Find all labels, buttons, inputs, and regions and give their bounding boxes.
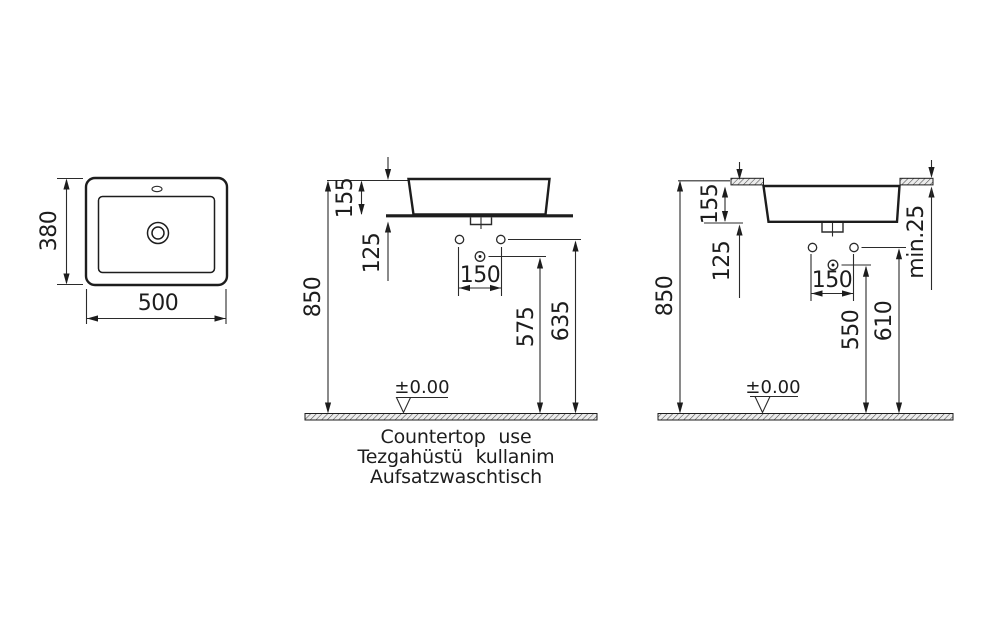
floor-level-label-countertop: ±0.00 bbox=[394, 379, 449, 397]
dim-label-125-recessed: 125 bbox=[712, 241, 734, 282]
floor-level-marker bbox=[750, 397, 798, 413]
dim-label-150-recessed: 150 bbox=[812, 270, 853, 292]
caption-tr: Tezgahüstü kullanim bbox=[331, 447, 581, 467]
floor-line bbox=[305, 414, 597, 421]
dim-label-850-recessed: 850 bbox=[655, 276, 677, 317]
countertop-right bbox=[900, 178, 933, 185]
basin-body-side bbox=[764, 186, 900, 222]
countertop-left bbox=[731, 178, 764, 185]
wall-holes bbox=[808, 243, 858, 270]
basin-body-side bbox=[409, 179, 550, 215]
dim-label-850-countertop: 850 bbox=[303, 277, 325, 318]
dim-label-575: 575 bbox=[516, 307, 538, 348]
dim-label-610: 610 bbox=[874, 301, 896, 342]
dim-125-lines bbox=[385, 157, 391, 281]
floor-line bbox=[658, 414, 953, 421]
floor-level-marker bbox=[396, 398, 448, 413]
floor-level-label-recessed: ±0.00 bbox=[745, 379, 800, 397]
dim-label-155-recessed: 155 bbox=[700, 184, 722, 225]
dim-label-155-countertop: 155 bbox=[335, 178, 357, 219]
dim-label-150-countertop: 150 bbox=[460, 265, 501, 287]
caption-en: Countertop use bbox=[331, 427, 581, 447]
dim-155-lines bbox=[358, 181, 364, 216]
technical-drawing-basin: 380 500 155 125 850 150 575 635 ±0.00 15… bbox=[0, 0, 1000, 642]
dim-label-635: 635 bbox=[551, 301, 573, 342]
drain-inner-circle bbox=[152, 227, 164, 239]
dim-label-min25: min.25 bbox=[906, 205, 928, 278]
caption-block: Countertop use Tezgahüstü kullanim Aufsa… bbox=[331, 427, 581, 487]
dim-label-depth-380: 380 bbox=[39, 211, 61, 252]
dim-label-550: 550 bbox=[841, 310, 863, 351]
wall-holes bbox=[455, 235, 505, 261]
dim-label-width-500: 500 bbox=[138, 293, 179, 315]
caption-de: Aufsatzwaschtisch bbox=[331, 467, 581, 487]
dim-label-125-countertop: 125 bbox=[362, 233, 384, 274]
